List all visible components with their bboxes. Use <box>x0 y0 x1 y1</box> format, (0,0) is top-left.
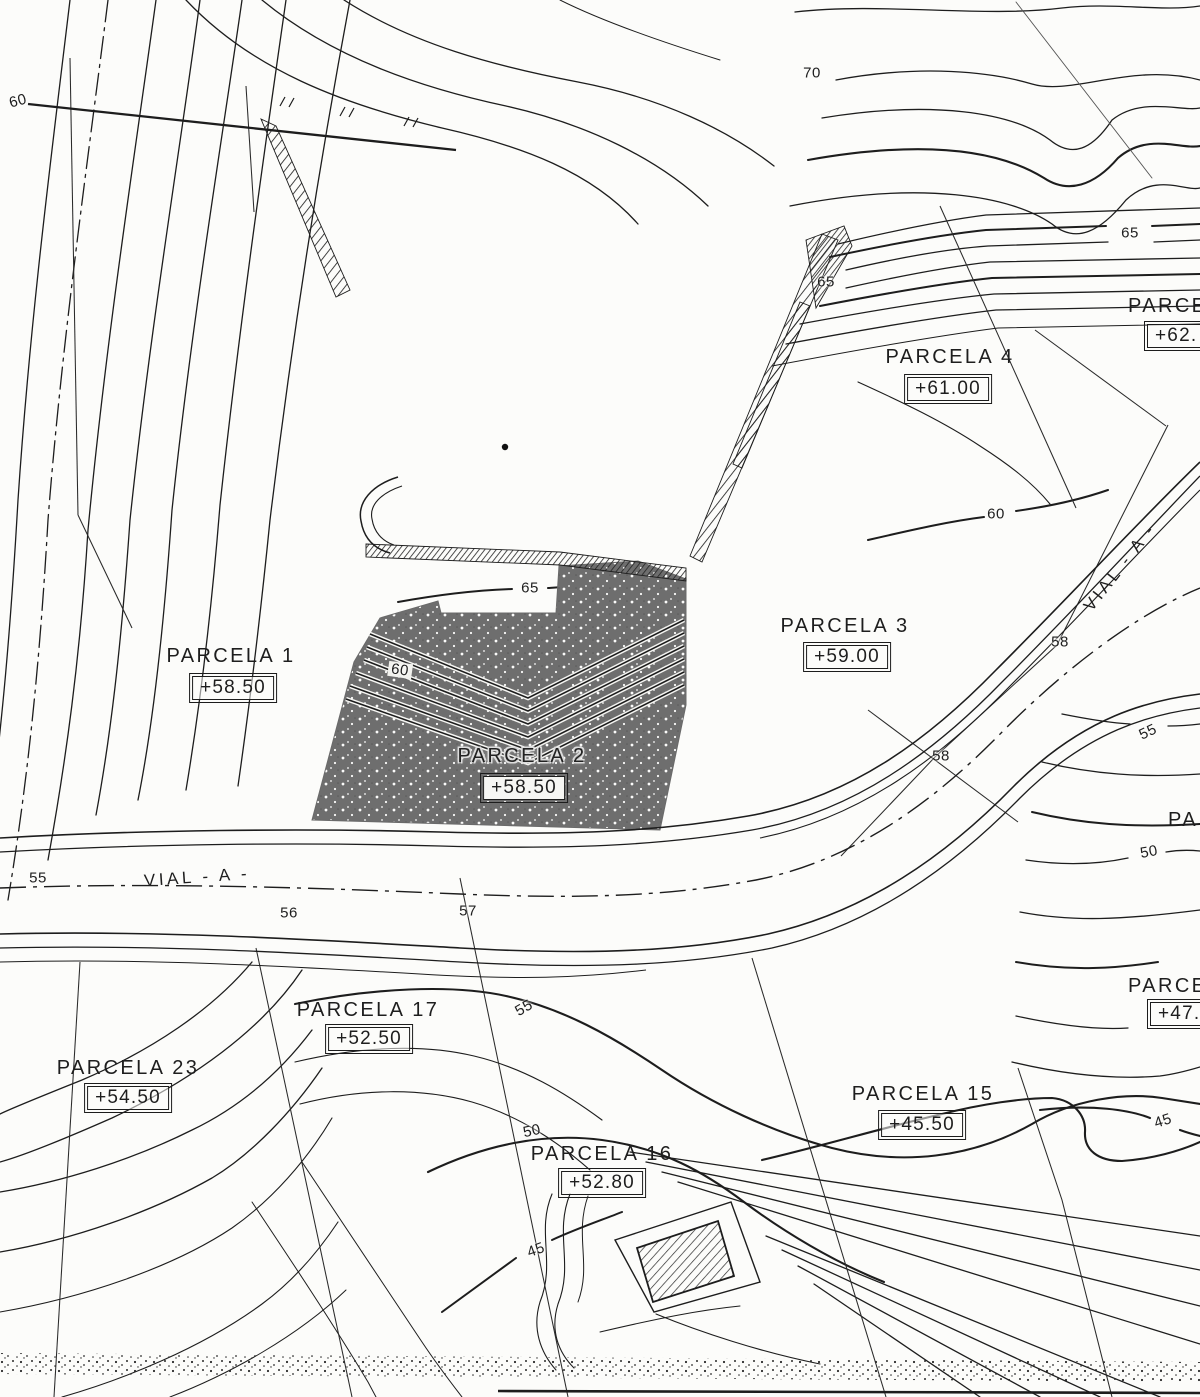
elevation-badge: +59.00 <box>806 645 888 669</box>
elevation-badge: +62. <box>1147 324 1200 348</box>
contour-elevation-label: 60 <box>8 91 29 110</box>
contour-elevation-label: 50 <box>522 1122 542 1140</box>
parcel-label: PARCELA 2 <box>457 746 586 766</box>
elevation-badge: +45.50 <box>881 1113 963 1137</box>
contour-elevation-label: 70 <box>803 66 821 81</box>
elevation-badge: +61.00 <box>907 377 989 401</box>
contour-elevation-label: 65 <box>1121 226 1139 241</box>
contour-elevation-label: 50 <box>1139 843 1159 861</box>
elevation-badge: +52.50 <box>328 1027 410 1051</box>
survey-point-dot <box>502 444 508 450</box>
elevation-badge: +58.50 <box>483 776 565 800</box>
contour-elevation-label: 57 <box>459 904 477 919</box>
parcel-label: PARCELA 3 <box>780 616 909 636</box>
stipple-band <box>0 1353 1200 1382</box>
contour-elevation-label: 65 <box>817 275 835 290</box>
parcel-label: PARCELA 4 <box>885 347 1014 367</box>
contour-elevation-label: 58 <box>932 749 950 764</box>
contour-elevation-label: 58 <box>1051 635 1069 650</box>
contour-elevation-label: 60 <box>987 507 1005 522</box>
site-plan: PARCELA 1+58.50PARCELA 2+58.50PARCELA 3+… <box>0 0 1200 1397</box>
building-pad <box>615 1202 760 1312</box>
parcel-label: PARCELA 1 <box>166 646 295 666</box>
elevation-badge: +58.50 <box>192 676 274 700</box>
bottom-edge-line <box>498 1391 1200 1393</box>
contour-elevation-label: 56 <box>280 906 298 921</box>
contour-elevation-label: 65 <box>521 581 539 596</box>
contour-elevation-label: 60 <box>387 661 413 679</box>
elevation-badge: +47. <box>1150 1002 1200 1026</box>
elevation-badge: +52.80 <box>561 1171 643 1195</box>
parcel-label: PARCE <box>1128 976 1200 996</box>
parcel-label: PARCELA 17 <box>297 1000 440 1020</box>
hatched-wall-bands <box>261 119 852 581</box>
parcel-label: PA <box>1168 810 1198 830</box>
elevation-badge: +54.50 <box>87 1086 169 1110</box>
parcel-label: PARCELA 23 <box>57 1058 200 1078</box>
contour-elevation-label: 55 <box>29 871 47 886</box>
parcel-label: PARCELA 15 <box>852 1084 995 1104</box>
parcel-label: PARCELA 16 <box>531 1144 674 1164</box>
parcel-label: PARCE <box>1128 296 1200 316</box>
